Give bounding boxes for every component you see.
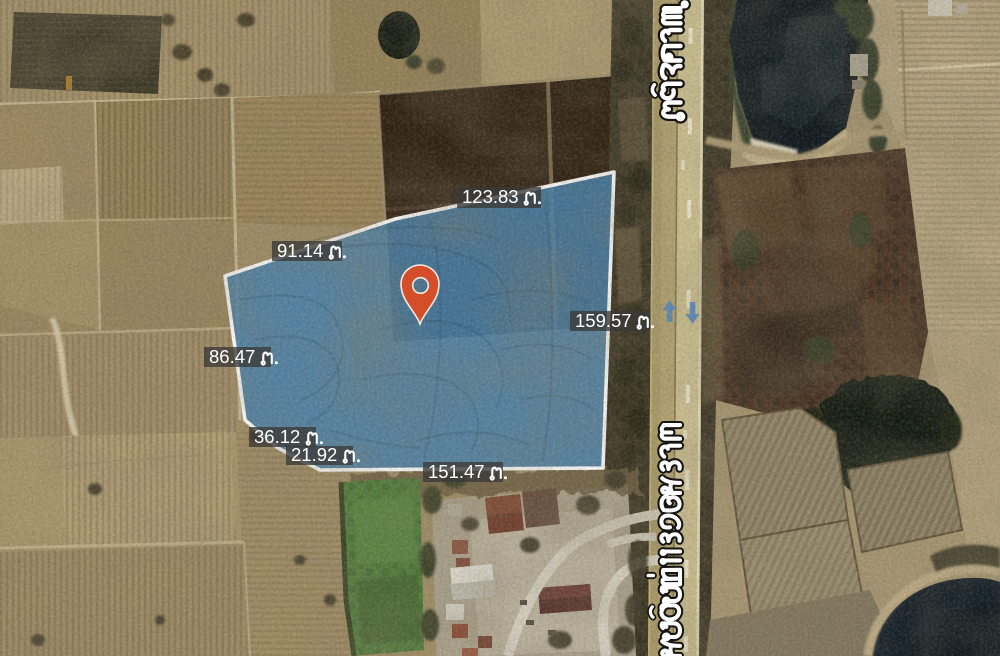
svg-text:91.14: 91.14 — [277, 240, 323, 261]
svg-text:151.47: 151.47 — [428, 461, 485, 482]
svg-text:21.92: 21.92 — [291, 444, 337, 465]
svg-text:86.47: 86.47 — [209, 346, 255, 367]
svg-text:123.83: 123.83 — [462, 186, 519, 207]
svg-text:159.57: 159.57 — [575, 310, 632, 331]
